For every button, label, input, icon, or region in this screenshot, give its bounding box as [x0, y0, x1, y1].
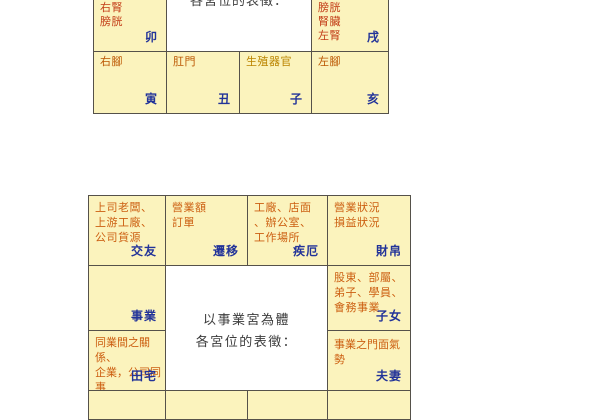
palace-cell-tianzhai-text: 同業間之關係、 企業，公司同事: [89, 331, 165, 395]
career-line: 事業之門面氣勢: [334, 337, 407, 367]
career-line: 股東、部屬、: [334, 270, 407, 285]
palace-cell-mao-text: 右腎 膀胱: [94, 0, 166, 29]
palace-cell-yin: 右腳 寅: [93, 51, 167, 114]
palace-cell-shiye: 事業: [88, 265, 166, 331]
palace-label-caibo: 財帛: [376, 242, 402, 259]
career-line: 營業狀況: [334, 200, 407, 215]
palace-cell-xu: 膀胱 腎臟 左腎 戌: [311, 0, 389, 52]
career-line: 損益狀況: [334, 215, 407, 230]
body-part-line: 肛門: [173, 55, 236, 69]
career-row4-cell-3: [247, 390, 328, 420]
palace-label-qianyi: 遷移: [213, 242, 239, 259]
career-line: 上游工廠、: [95, 215, 162, 230]
branch-zi: 子: [290, 90, 303, 107]
palace-cell-mao: 右腎 膀胱 卯: [93, 0, 167, 52]
caption-line: 各宮位的表徵：: [166, 332, 327, 354]
palace-cell-chou-text: 肛門: [167, 52, 239, 69]
career-line: 訂單: [172, 215, 244, 230]
body-part-line: 膀胱: [318, 1, 385, 15]
palace-label-jiaoyou: 交友: [131, 242, 157, 259]
palace-cell-qianyi-text: 營業額 訂單: [166, 196, 247, 230]
palace-label-shiye: 事業: [131, 307, 157, 324]
body-part-line: 生殖器官: [246, 55, 308, 69]
palace-cell-fuqi: 事業之門面氣勢 夫妻: [327, 330, 411, 391]
palace-cell-jiaoyou: 上司老闆、 上游工廠、 公司貨源 交友: [88, 195, 166, 266]
palace-label-fuqi: 夫妻: [376, 367, 402, 384]
body-map-center-cell: 各宮位的表徵：: [166, 0, 312, 52]
branch-chou: 丑: [218, 90, 231, 107]
branch-yin: 寅: [145, 90, 158, 107]
body-part-line: 膀胱: [100, 15, 163, 29]
career-row4-cell-1: [88, 390, 166, 420]
palace-cell-jie: 工廠、店面 、辦公室、 工作場所 疾厄: [247, 195, 328, 266]
palace-cell-zi-text: 生殖器官: [240, 52, 311, 69]
body-part-line: 左腳: [318, 55, 385, 69]
palace-cell-tianzhai: 同業間之關係、 企業，公司同事 田宅: [88, 330, 166, 391]
career-map-caption: 以事業宮為體 各宮位的表徵：: [166, 310, 327, 354]
palace-cell-caibo: 營業狀況 損益狀況 財帛: [327, 195, 411, 266]
career-line: 上司老闆、: [95, 200, 162, 215]
palace-cell-yin-text: 右腳: [94, 52, 166, 69]
palace-cell-fuqi-text: 事業之門面氣勢: [328, 331, 410, 367]
palace-label-tianzhai: 田宅: [131, 367, 157, 384]
palace-cell-caibo-text: 營業狀況 損益狀況: [328, 196, 410, 230]
career-row4-cell-2: [165, 390, 248, 420]
palace-label-jie: 疾厄: [293, 242, 319, 259]
career-map-center-cell: 以事業宮為體 各宮位的表徵：: [165, 265, 328, 391]
palace-cell-chou: 肛門 丑: [166, 51, 240, 114]
branch-hai: 亥: [367, 90, 380, 107]
body-map-caption-clipped: 各宮位的表徵：: [167, 0, 311, 8]
career-line: 同業間之關係、: [95, 335, 162, 365]
palace-cell-qianyi: 營業額 訂單 遷移: [165, 195, 248, 266]
body-part-line: 右腳: [100, 55, 163, 69]
body-part-line: 腎臟: [318, 15, 385, 29]
palace-cell-zinv: 股東、部屬、 弟子、學員、 會務事業 子女: [327, 265, 411, 331]
career-row4-cell-4: [327, 390, 411, 420]
career-line: 、辦公室、: [254, 215, 324, 230]
caption-line: 以事業宮為體: [166, 310, 327, 332]
palace-cell-jie-text: 工廠、店面 、辦公室、 工作場所: [248, 196, 327, 245]
career-line: 弟子、學員、: [334, 285, 407, 300]
palace-cell-jiaoyou-text: 上司老闆、 上游工廠、 公司貨源: [89, 196, 165, 245]
career-line: 工廠、店面: [254, 200, 324, 215]
palace-cell-zi: 生殖器官 子: [239, 51, 312, 114]
branch-xu: 戌: [367, 28, 380, 45]
palace-label-zinv: 子女: [376, 307, 402, 324]
palace-cell-hai: 左腳 亥: [311, 51, 389, 114]
body-part-line: 右腎: [100, 1, 163, 15]
palace-cell-hai-text: 左腳: [312, 52, 388, 69]
career-line: 營業額: [172, 200, 244, 215]
branch-mao: 卯: [145, 28, 158, 45]
